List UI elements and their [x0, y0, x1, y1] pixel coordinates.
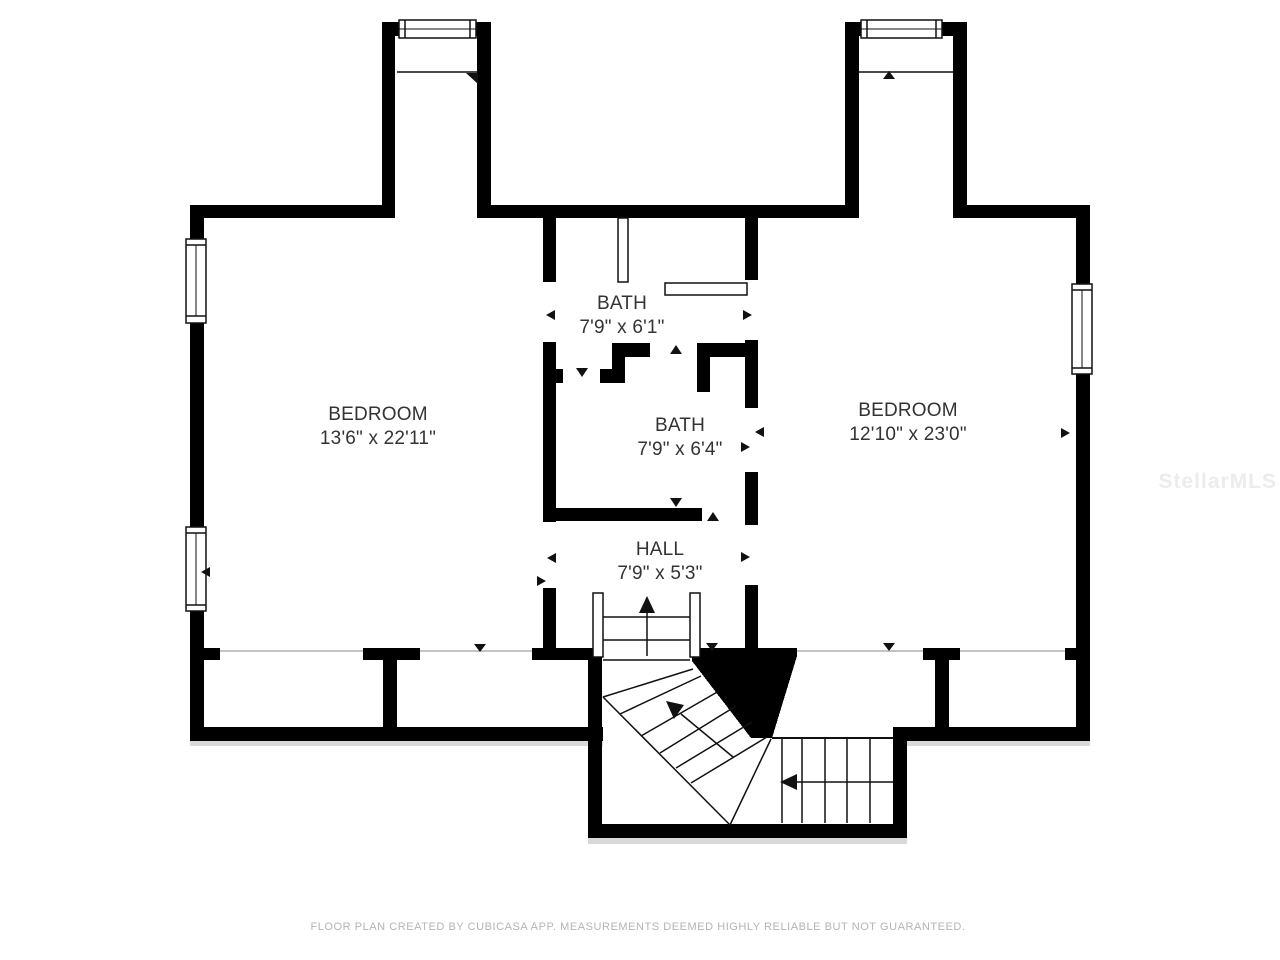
footer-disclaimer: FLOOR PLAN CREATED BY CUBICASA APP. MEAS…: [310, 921, 965, 933]
window-dormer-left: [399, 20, 476, 38]
door-arrow: [741, 552, 750, 562]
room-label-bedroom-right: BEDROOM: [858, 400, 958, 421]
door-arrow: [741, 442, 750, 452]
door-arrow: [466, 73, 478, 84]
room-label-hall: HALL: [636, 539, 684, 560]
door-arrow: [670, 345, 682, 354]
door-arrow: [755, 427, 764, 437]
room-label-bath-middle: BATH: [655, 415, 705, 436]
stair-rail-right: [690, 593, 700, 657]
window-left-upper: [186, 239, 206, 323]
window-dormer-right: [861, 20, 942, 38]
stairs-upper-flight: [593, 593, 700, 660]
watermark: StellarMLS: [1158, 470, 1277, 493]
door-arrow: [576, 368, 588, 377]
room-label-bedroom-left: BEDROOM: [328, 404, 428, 425]
floor-plan-svg: BEDROOM 13'6" x 22'11" BATH 7'9" x 6'1" …: [0, 0, 1280, 960]
stair-rail-left: [593, 593, 603, 657]
stairs-lower-flight: [772, 738, 893, 823]
floor-plan-page: BEDROOM 13'6" x 22'11" BATH 7'9" x 6'1" …: [0, 0, 1280, 960]
window-right: [1072, 284, 1092, 374]
door-arrow: [883, 643, 895, 651]
door-arrow: [743, 310, 752, 320]
door-arrow: [707, 512, 719, 521]
stair-up-arrow: [639, 596, 655, 613]
door-arrow: [537, 576, 546, 586]
bath-partition-fixture: [618, 218, 628, 282]
window-arrow: [1061, 428, 1070, 438]
room-dimensions-bedroom-left: 13'6" x 22'11": [320, 428, 436, 449]
window-left-lower: [186, 527, 206, 611]
stair-winder-arrow: [666, 701, 684, 719]
room-dimensions-bath-middle: 7'9" x 6'4": [637, 439, 722, 460]
door-arrow: [546, 310, 555, 320]
room-dimensions-hall: 7'9" x 5'3": [617, 563, 702, 584]
room-dimensions-bedroom-right: 12'10" x 23'0": [849, 424, 967, 445]
room-labels: BEDROOM 13'6" x 22'11" BATH 7'9" x 6'1" …: [320, 293, 967, 584]
door-arrow: [547, 553, 556, 563]
bath-fixtures: [618, 218, 747, 295]
bath-counter-fixture: [665, 283, 747, 295]
stairwell-corner-wedge-wall: [692, 648, 797, 738]
room-dimensions-bath-top: 7'9" x 6'1": [579, 317, 664, 338]
door-arrow: [670, 498, 682, 507]
room-label-bath-top: BATH: [597, 293, 647, 314]
